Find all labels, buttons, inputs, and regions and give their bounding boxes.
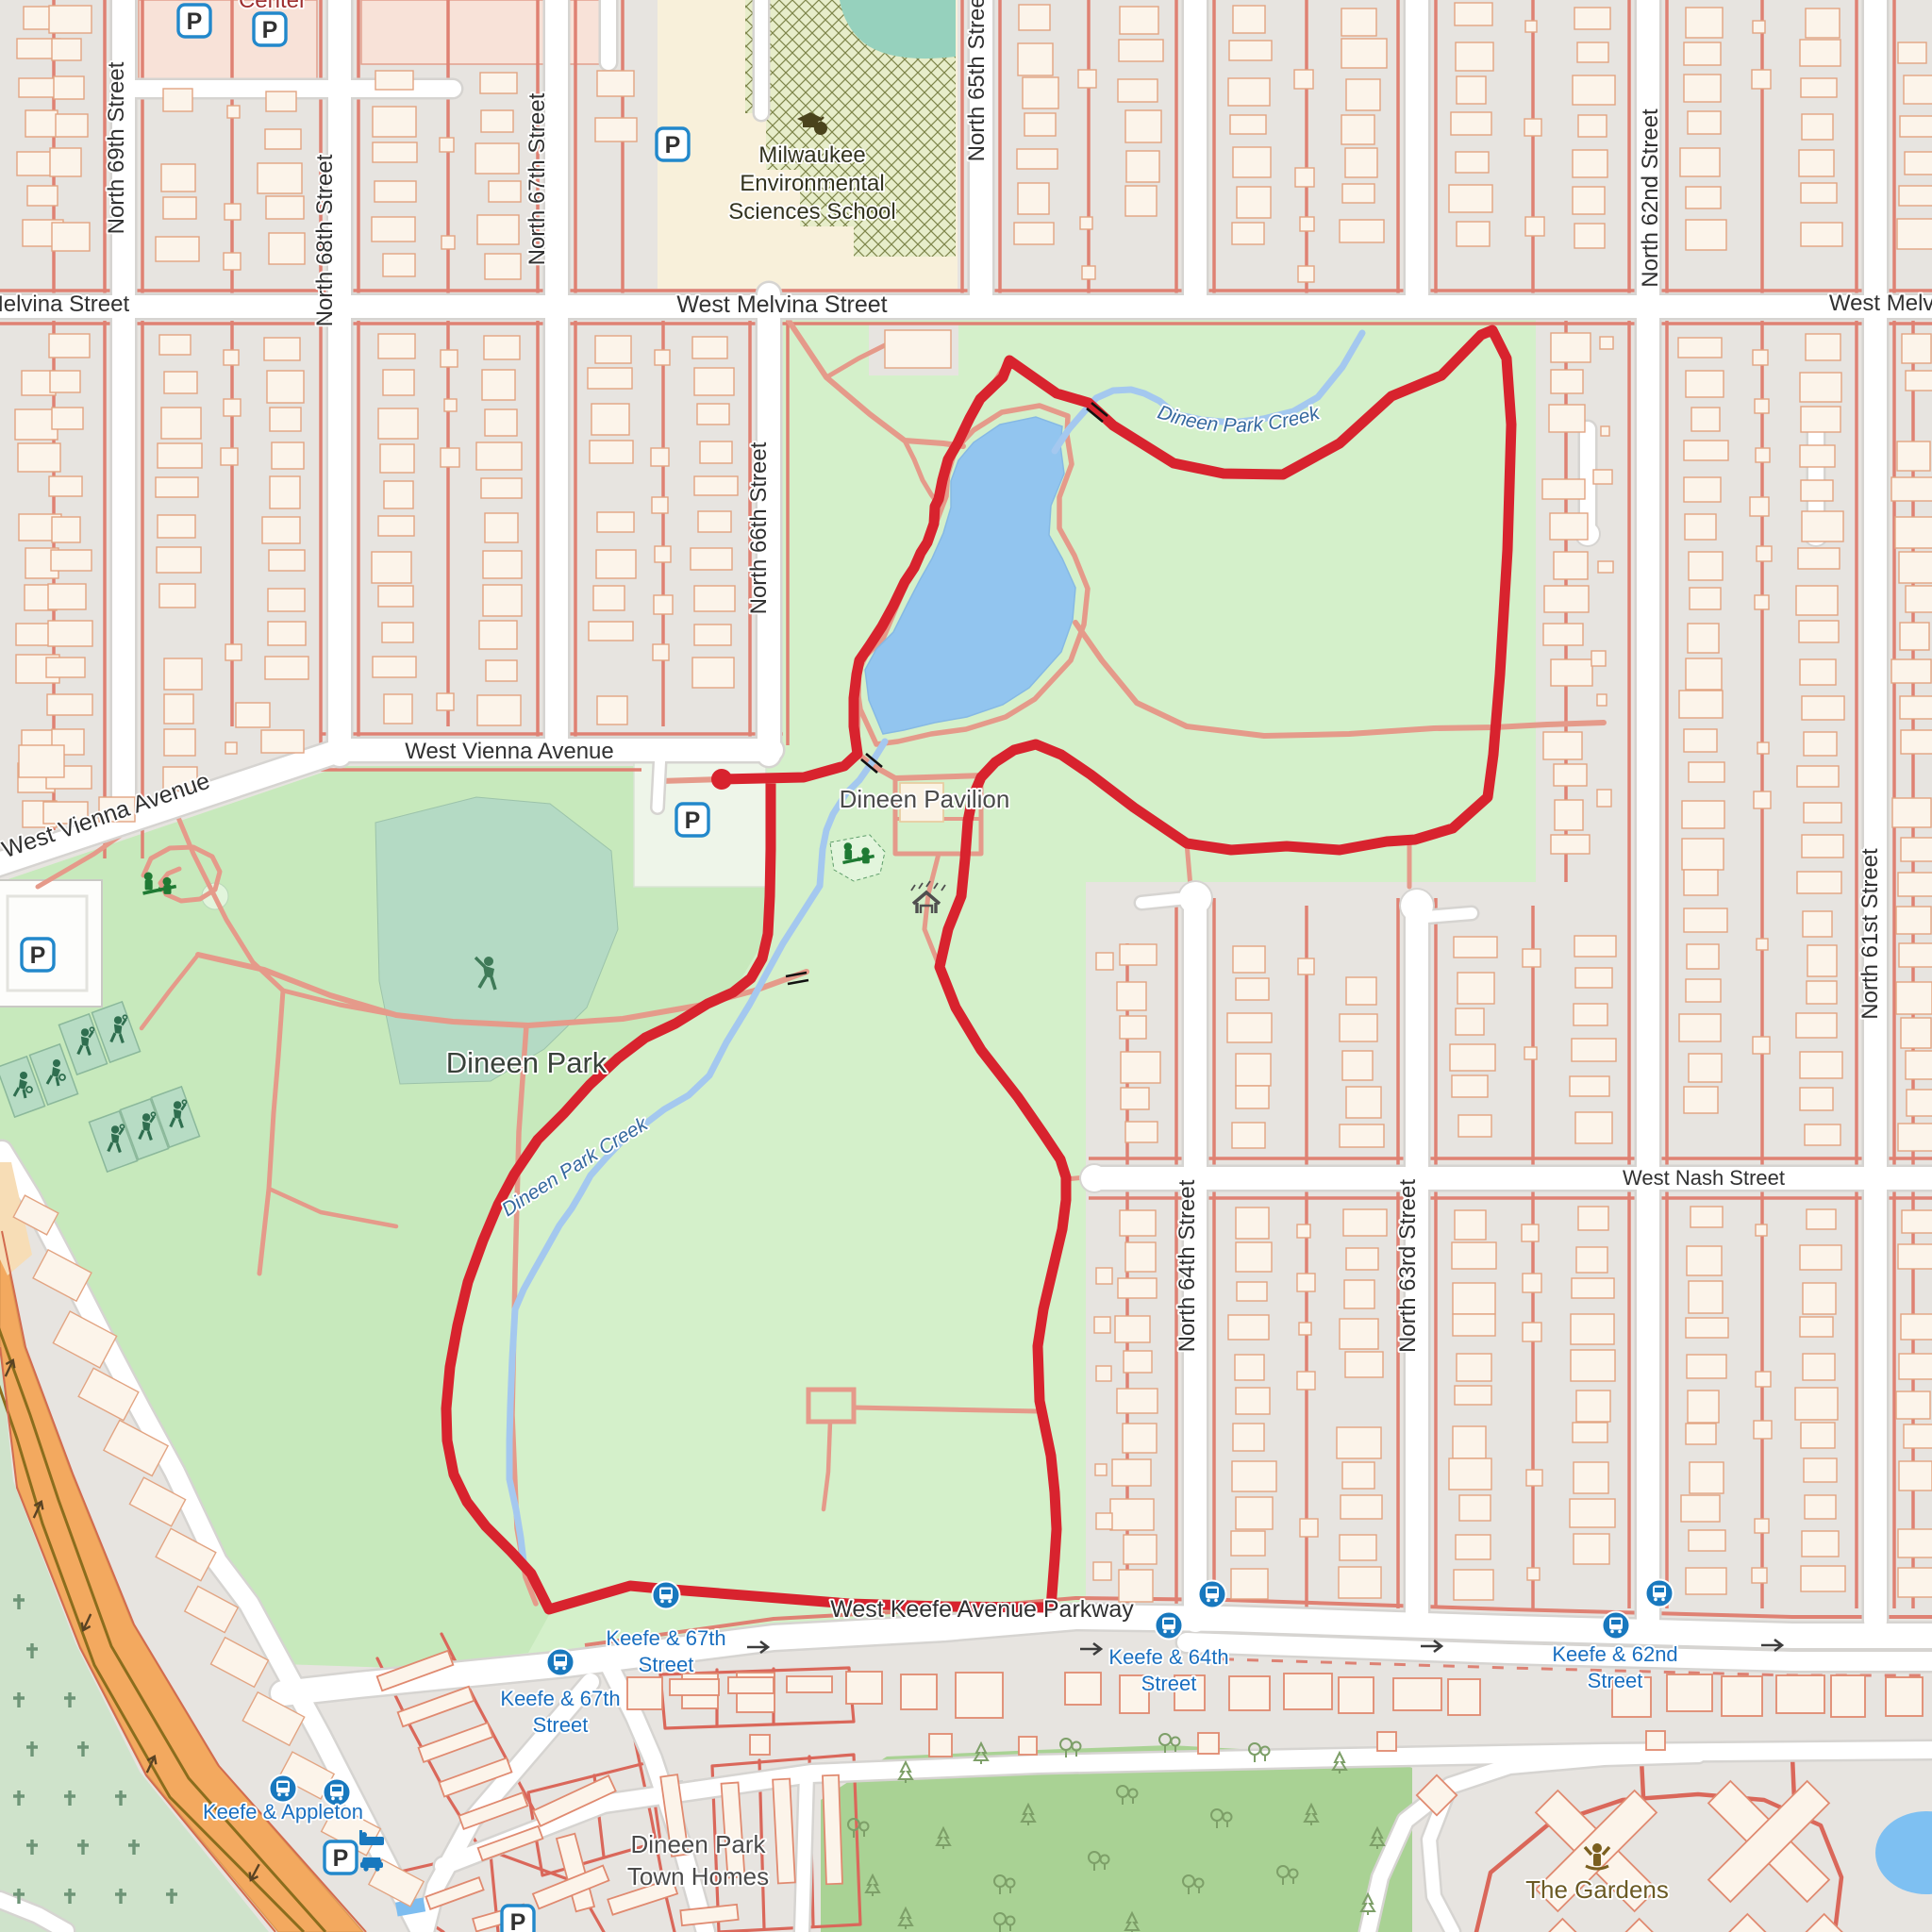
svg-text:Sciences School: Sciences School: [728, 199, 895, 225]
svg-text:North 65th Street: North 65th Street: [964, 0, 990, 161]
svg-text:The Gardens: The Gardens: [1525, 1875, 1669, 1904]
svg-text:West Keefe Avenue Parkway: West Keefe Avenue Parkway: [830, 1596, 1134, 1623]
svg-text:Town Homes: Town Homes: [627, 1862, 769, 1890]
svg-text:North 61st Street: North 61st Street: [1857, 848, 1883, 1020]
svg-text:West Melvina Street: West Melvina Street: [0, 291, 129, 317]
svg-text:Street: Street: [1141, 1672, 1197, 1695]
svg-text:Street: Street: [1588, 1669, 1643, 1692]
svg-text:P: P: [685, 808, 701, 834]
svg-text:North 63rd Street: North 63rd Street: [1395, 1179, 1421, 1353]
svg-text:North 62nd Street: North 62nd Street: [1638, 108, 1663, 288]
svg-text:P: P: [665, 132, 681, 158]
svg-text:Keefe & 64th: Keefe & 64th: [1108, 1645, 1228, 1669]
svg-text:Dineen Pavilion: Dineen Pavilion: [840, 785, 1010, 813]
svg-text:P: P: [30, 942, 46, 969]
svg-text:P: P: [262, 17, 278, 43]
svg-text:West Melvina Street: West Melvina Street: [1829, 291, 1932, 316]
svg-text:Dineen Park: Dineen Park: [630, 1830, 766, 1858]
svg-text:Keefe & 62nd: Keefe & 62nd: [1552, 1642, 1677, 1666]
svg-text:Dineen Park: Dineen Park: [446, 1046, 608, 1079]
svg-text:Keefe & 67th: Keefe & 67th: [500, 1687, 620, 1710]
svg-text:P: P: [187, 8, 203, 35]
svg-text:Keefe & 67th: Keefe & 67th: [606, 1626, 725, 1650]
svg-text:Street: Street: [533, 1713, 589, 1737]
svg-text:North 69th Street: North 69th Street: [104, 61, 129, 234]
svg-text:Center: Center: [239, 0, 307, 13]
svg-text:North 68th Street: North 68th Street: [312, 154, 338, 326]
svg-text:Environmental: Environmental: [740, 171, 884, 196]
svg-text:West Melvina Street: West Melvina Street: [676, 291, 887, 318]
svg-text:Keefe & Appleton: Keefe & Appleton: [203, 1800, 363, 1824]
svg-text:P: P: [333, 1845, 349, 1872]
svg-text:Street: Street: [639, 1653, 694, 1676]
svg-text:North 64th Street: North 64th Street: [1174, 1179, 1200, 1352]
svg-text:West Nash Street: West Nash Street: [1623, 1166, 1785, 1190]
svg-text:Milwaukee: Milwaukee: [758, 142, 865, 168]
svg-text:P: P: [510, 1909, 526, 1932]
svg-text:North 67th Street: North 67th Street: [525, 92, 550, 265]
svg-text:North 66th Street: North 66th Street: [746, 441, 772, 614]
svg-text:West Vienna Avenue: West Vienna Avenue: [405, 739, 614, 764]
